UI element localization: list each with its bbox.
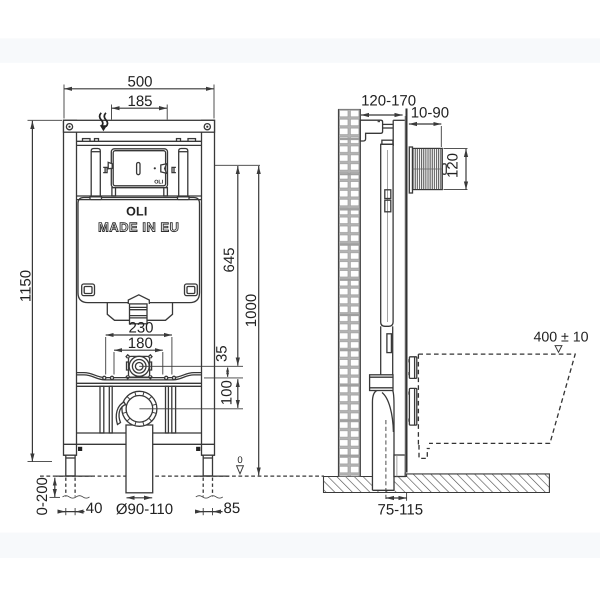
svg-text:400 ± 10: 400 ± 10 — [533, 330, 588, 346]
svg-text:100: 100 — [219, 380, 236, 405]
svg-text:185: 185 — [127, 93, 152, 110]
svg-text:OLI: OLI — [154, 180, 163, 186]
svg-text:120: 120 — [444, 153, 461, 178]
svg-text:230: 230 — [128, 319, 153, 336]
svg-text:10-90: 10-90 — [411, 105, 449, 122]
svg-text:1150: 1150 — [18, 270, 35, 302]
svg-text:1000: 1000 — [243, 294, 260, 327]
svg-text:75-115: 75-115 — [378, 502, 424, 519]
svg-text:180: 180 — [128, 335, 153, 352]
svg-text:35: 35 — [213, 345, 230, 362]
svg-text:40: 40 — [86, 500, 103, 517]
svg-text:500: 500 — [127, 74, 152, 91]
svg-text:85: 85 — [224, 500, 241, 517]
svg-text:0-200: 0-200 — [34, 477, 51, 515]
svg-text:OLI: OLI — [126, 204, 147, 218]
svg-text:0: 0 — [237, 455, 242, 466]
svg-text:645: 645 — [221, 247, 238, 272]
svg-text:MADE IN EU: MADE IN EU — [98, 220, 179, 235]
svg-text:120-170: 120-170 — [361, 92, 416, 109]
svg-text:Ø90-110: Ø90-110 — [116, 501, 173, 518]
